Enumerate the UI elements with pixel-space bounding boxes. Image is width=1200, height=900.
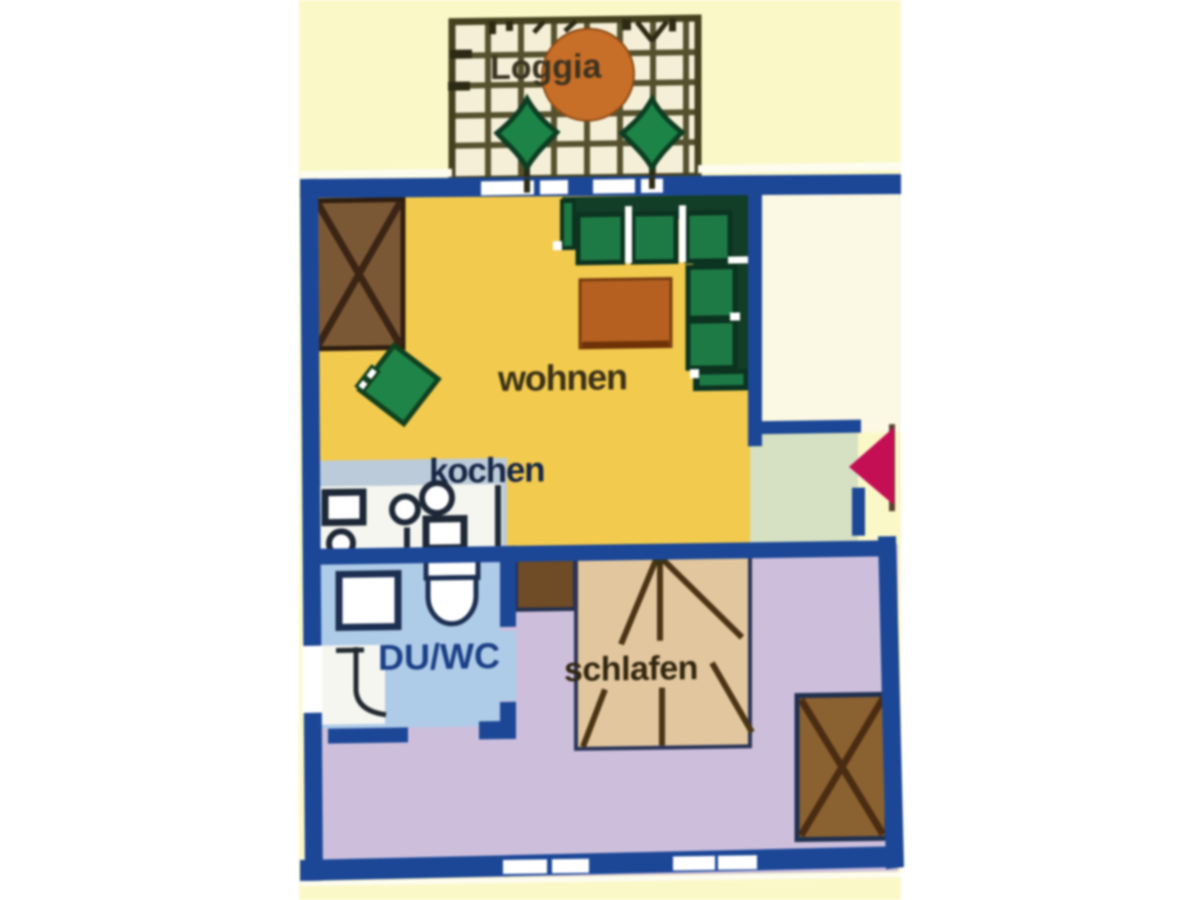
svg-text:schlafen: schlafen [564, 649, 698, 689]
svg-text:DU/WC: DU/WC [378, 635, 500, 678]
svg-text:wohnen: wohnen [497, 356, 627, 399]
svg-text:kochen: kochen [429, 450, 544, 491]
svg-text:Loggia: Loggia [490, 48, 603, 88]
